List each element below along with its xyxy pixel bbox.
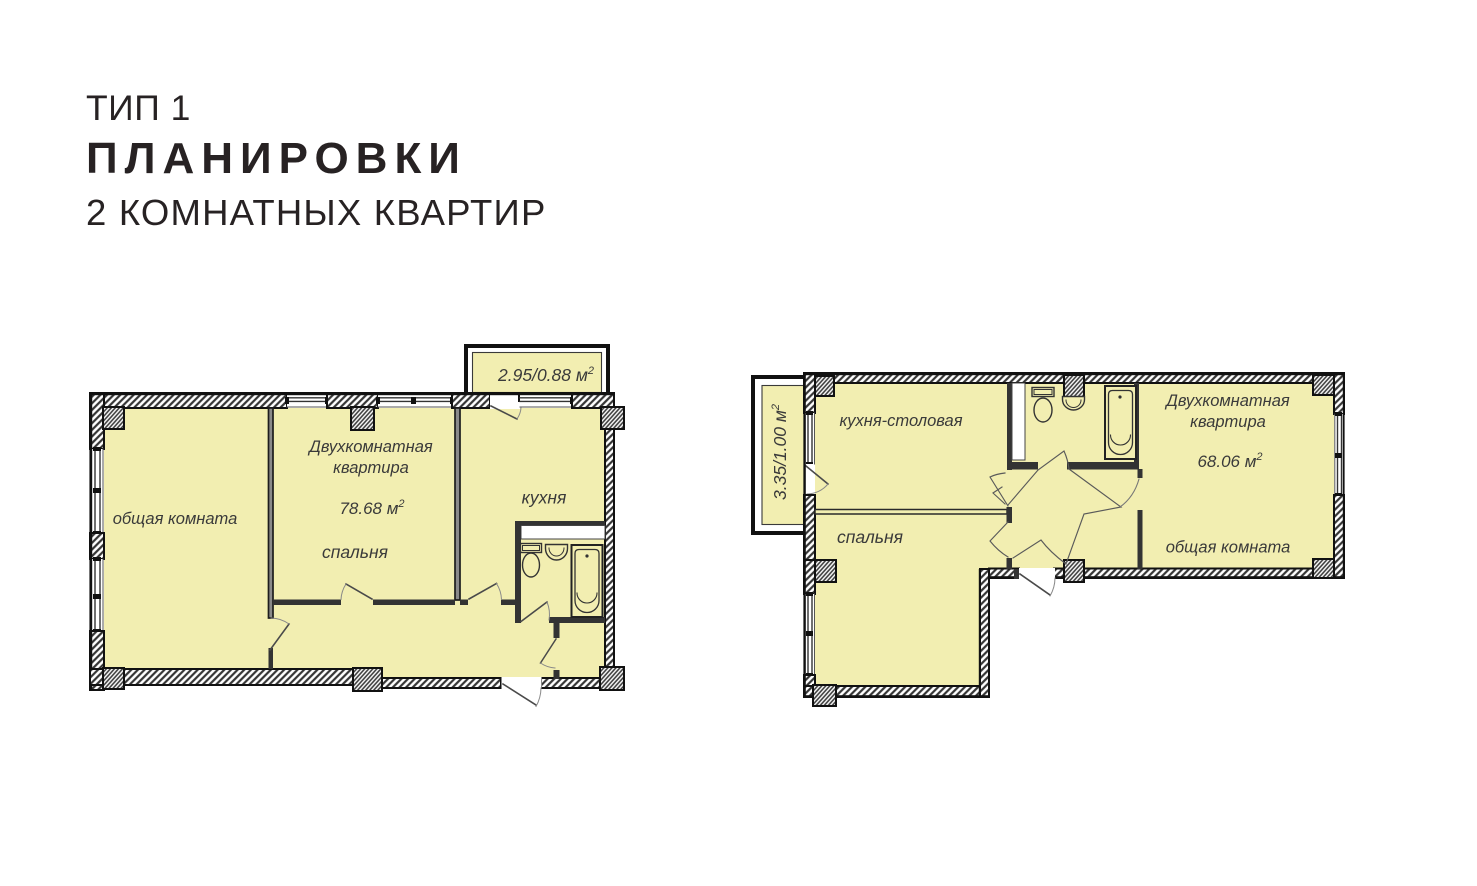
- svg-text:общая комната: общая комната: [1166, 539, 1291, 557]
- svg-text:общая комната: общая комната: [113, 510, 238, 528]
- svg-text:68.06 м2: 68.06 м2: [1197, 451, 1262, 471]
- svg-text:78.68 м2: 78.68 м2: [339, 498, 404, 518]
- svg-text:3.35/1.00 м2: 3.35/1.00 м2: [770, 404, 790, 500]
- svg-text:кухня-столовая: кухня-столовая: [839, 412, 962, 430]
- svg-text:2.95/0.88 м2: 2.95/0.88 м2: [497, 365, 594, 385]
- svg-text:Двухкомнатная: Двухкомнатная: [1164, 392, 1290, 410]
- svg-text:Двухкомнатная: Двухкомнатная: [307, 438, 433, 456]
- svg-text:спальня: спальня: [837, 527, 903, 547]
- svg-text:квартира: квартира: [1190, 413, 1266, 431]
- svg-text:квартира: квартира: [333, 459, 409, 477]
- svg-text:спальня: спальня: [322, 542, 388, 562]
- svg-text:кухня: кухня: [522, 488, 567, 508]
